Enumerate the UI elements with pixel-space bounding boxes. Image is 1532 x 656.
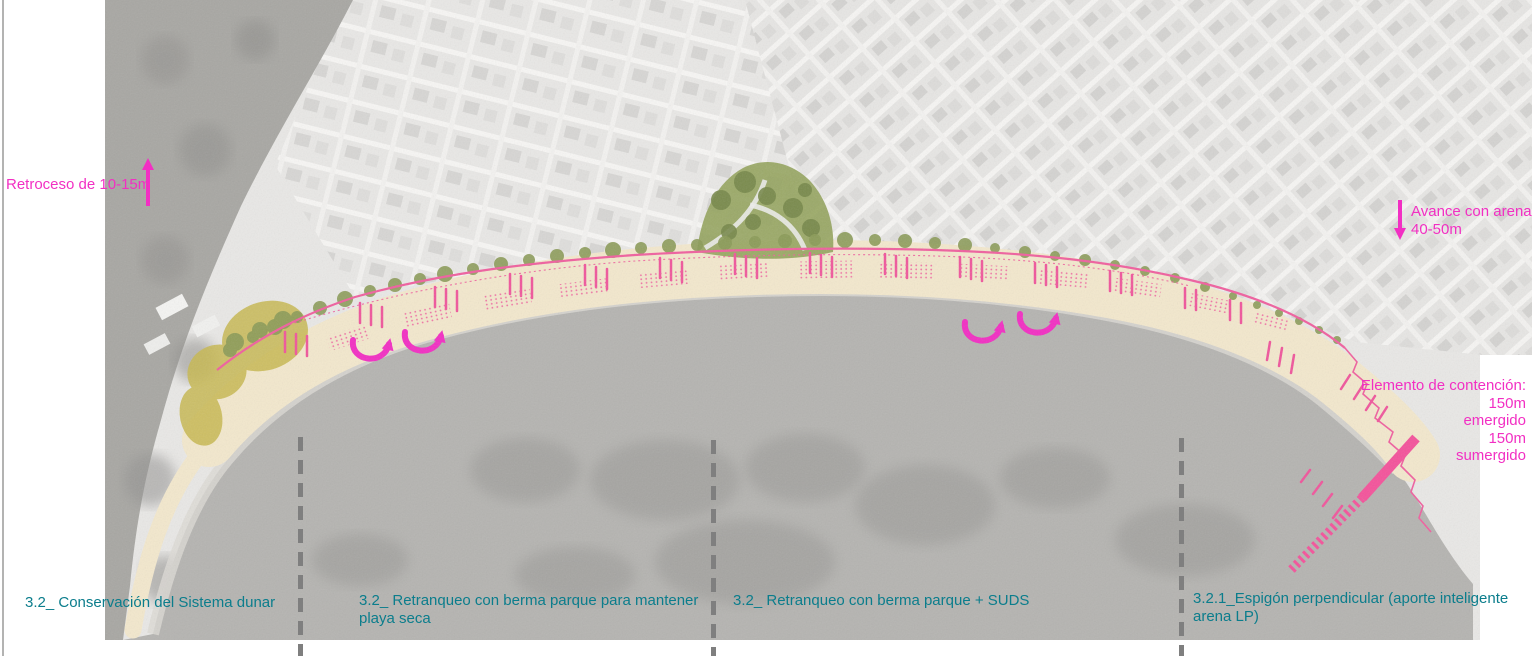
avance-label: Avance con arena 40-50m bbox=[1411, 203, 1532, 239]
section-label-line: playa seca bbox=[359, 610, 698, 628]
contencion-label: Elemento de contención: 150m emergido 15… bbox=[1361, 377, 1526, 465]
section-label-espigon: 3.2.1_Espigón perpendicular (aporte inte… bbox=[1193, 590, 1508, 626]
contencion-line1: Elemento de contención: bbox=[1361, 377, 1526, 395]
section-label-line: 3.2_ Conservación del Sistema dunar bbox=[25, 594, 275, 612]
contencion-line3: emergido bbox=[1361, 412, 1526, 430]
avance-label-line1: Avance con arena bbox=[1411, 203, 1532, 221]
contencion-line5: sumergido bbox=[1361, 447, 1526, 465]
section-label-line: arena LP) bbox=[1193, 608, 1508, 626]
retroceso-label: Retroceso de 10-15m bbox=[6, 176, 150, 194]
masterplan-diagram: Retroceso de 10-15m Avance con arena 40-… bbox=[0, 0, 1532, 656]
section-label-line: 3.2_ Retranqueo con berma parque para ma… bbox=[359, 592, 698, 610]
section-label-retranqueo-berma: 3.2_ Retranqueo con berma parque para ma… bbox=[359, 592, 698, 628]
aerial-photo bbox=[105, 0, 1532, 656]
photo-grain bbox=[105, 0, 1532, 640]
section-label-dunar: 3.2_ Conservación del Sistema dunar bbox=[25, 594, 275, 612]
contencion-line2: 150m bbox=[1361, 395, 1526, 413]
section-label-line: 3.2.1_Espigón perpendicular (aporte inte… bbox=[1193, 590, 1508, 608]
section-label-retranqueo-suds: 3.2_ Retranqueo con berma parque + SUDS bbox=[733, 592, 1029, 610]
avance-label-line2: 40-50m bbox=[1411, 221, 1532, 239]
contencion-line4: 150m bbox=[1361, 430, 1526, 448]
aerial-plan-graphic bbox=[0, 0, 1532, 656]
section-label-line: 3.2_ Retranqueo con berma parque + SUDS bbox=[733, 592, 1029, 610]
